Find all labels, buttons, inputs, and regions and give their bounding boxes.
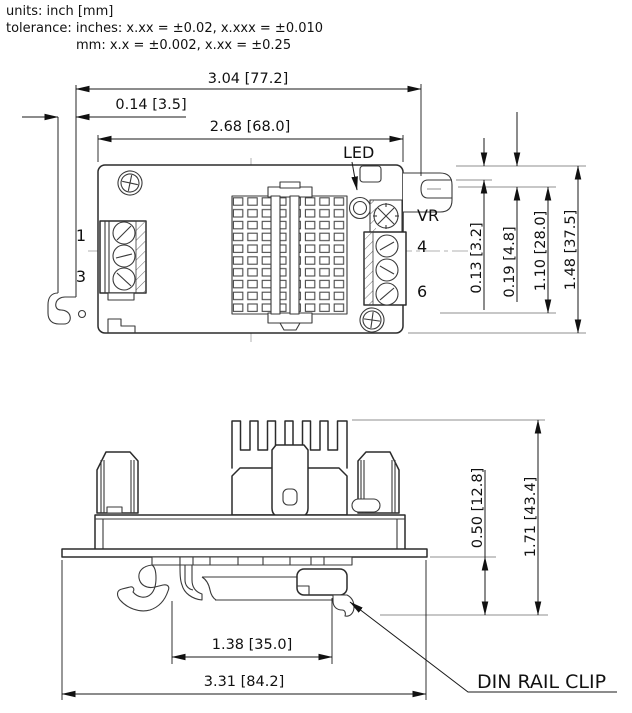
dim-slot-depth: 0.19 [4.8] <box>502 112 518 302</box>
dim-text: 3.04 [77.2] <box>208 71 289 87</box>
header-note: units: inch [mm] tolerance: inches: x.xx… <box>6 4 323 53</box>
chassis-base <box>95 515 405 549</box>
top-view: 1 3 LED VR <box>22 71 586 345</box>
dim-text: 2.68 [68.0] <box>210 119 291 135</box>
dim-text: 1.38 [35.0] <box>212 637 293 653</box>
led-indicator <box>350 198 371 219</box>
mechanical-drawing-page: units: inch [mm] tolerance: inches: x.xx… <box>0 0 632 713</box>
terminal-block-input <box>100 221 146 300</box>
vr-label: VR <box>417 206 439 225</box>
top-edge-tab <box>360 166 381 182</box>
led-label: LED <box>343 143 374 162</box>
pin-label-4: 4 <box>417 237 427 256</box>
dim-overall-height: 1.71 [43.4] <box>523 420 539 615</box>
dim-text: 0.19 [4.8] <box>502 226 518 297</box>
terminal-side-left <box>97 452 138 513</box>
tolerance-note-1: tolerance: inches: x.xx = ±0.02, x.xxx =… <box>6 21 323 36</box>
din-rail-clip-label: DIN RAIL CLIP <box>477 671 606 693</box>
din-clip-release-tab <box>48 85 86 324</box>
heatsink-rail-left <box>271 196 280 314</box>
dim-text: 0.50 [12.8] <box>470 468 486 549</box>
rail-left-jaw <box>180 565 202 600</box>
dim-text: 1.71 [43.4] <box>523 477 539 558</box>
terminal-block-output <box>364 232 406 305</box>
din-rail-clip-assembly <box>118 557 354 616</box>
pin-label-3: 3 <box>76 267 86 286</box>
dim-text: 0.13 [3.2] <box>469 222 485 293</box>
terminal-side-right <box>352 452 399 513</box>
pin-label-6: 6 <box>417 282 427 301</box>
clip-spring-hook <box>118 565 169 611</box>
dim-text: 0.14 [3.5] <box>115 97 186 113</box>
dim-slot-spacing: 1.10 [28.0] <box>533 187 549 313</box>
dim-text: 1.10 [28.0] <box>533 211 549 292</box>
side-view: 0.50 [12.8] 1.71 [43.4] 1.38 [35.0] 3.31… <box>62 420 617 700</box>
dim-rail-width: 1.38 [35.0] <box>172 637 332 657</box>
vr-potentiometer <box>370 200 402 232</box>
din-rail-clip-callout: DIN RAIL CLIP <box>350 602 617 693</box>
dim-text: 3.31 [84.2] <box>204 674 285 690</box>
heatsink-rail-right <box>290 196 299 314</box>
clip-right-claw <box>333 595 354 616</box>
units-note: units: inch [mm] <box>6 4 113 19</box>
mounting-plate <box>62 549 427 557</box>
technical-drawing: units: inch [mm] tolerance: inches: x.xx… <box>0 0 632 713</box>
dim-body-height: 1.48 [37.5] <box>563 166 579 333</box>
dim-clip-depth: 0.50 [12.8] <box>470 468 486 615</box>
capacitor-side <box>352 499 380 512</box>
center-clip-side <box>272 445 308 517</box>
clip-hole <box>283 489 297 505</box>
pin-label-1: 1 <box>76 226 86 245</box>
dim-slot-offset: 0.13 [3.2] <box>469 138 485 310</box>
clip-pivot-dot <box>79 311 86 318</box>
dim-overall-width-bottom: 3.31 [84.2] <box>62 674 426 694</box>
dim-clip-tab: 0.14 [3.5] <box>22 97 187 117</box>
rail-right-flange <box>297 569 347 595</box>
tolerance-note-2: mm: x.x = ±0.002, x.xx = ±0.25 <box>76 38 291 53</box>
heatsink <box>232 182 347 330</box>
dim-text: 1.48 [37.5] <box>563 210 579 291</box>
